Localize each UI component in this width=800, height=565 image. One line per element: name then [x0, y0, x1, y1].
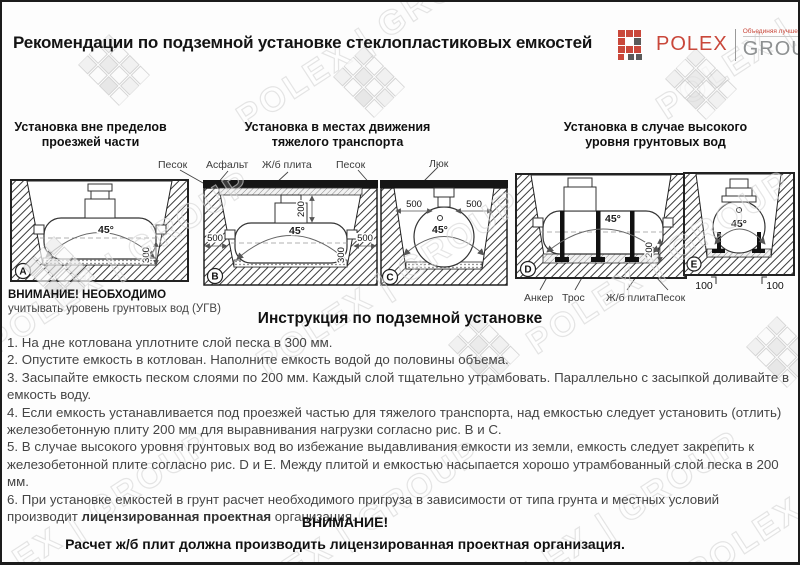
depth-dim: 300 [336, 247, 347, 263]
right-dim: 500 [466, 199, 482, 210]
page-title: Рекомендации по подземной установке стек… [13, 33, 592, 53]
section-heading-middle-line1: Установка в местах движения [245, 120, 431, 134]
angle-label: 45° [98, 224, 114, 236]
label-slab-top: Ж/б плита [262, 159, 312, 171]
logo-polex-text: POLEX [656, 33, 728, 56]
instructions-heading: Инструкция по подземной установке [0, 310, 800, 328]
attention-text: Расчет ж/б плит должна производить лицен… [0, 536, 690, 552]
instruction-item-4: 4. Если емкость устанавливается под прое… [7, 404, 793, 439]
angle-label: 45° [731, 218, 747, 230]
label-asphalt: Асфальт [206, 159, 248, 171]
label-hatch: Люк [429, 158, 448, 170]
diagram-c: 500 500 45° C [380, 176, 508, 287]
instruction-item-5: 5. В случае высокого уровня грунтовых во… [7, 438, 793, 490]
groundwater-note-title: ВНИМАНИЕ! НЕОБХОДИМО [8, 289, 166, 301]
slab-gap-dim: 200 [296, 201, 307, 217]
depth-dim: 300 [141, 247, 152, 263]
asphalt-layer [203, 180, 378, 188]
attention-block: ВНИМАНИЕ! Расчет ж/б плит должна произво… [0, 514, 690, 552]
section-heading-middle-line2: тяжелого транспорта [272, 135, 404, 149]
watermark-text: POLEX | GROUP [230, 0, 509, 138]
logo-group-text: GROUP [743, 38, 800, 61]
label-slab-bottom: Ж/б плита [606, 292, 656, 304]
left-dim: 500 [406, 199, 422, 210]
logo-divider [735, 29, 736, 61]
diagram-d: 45° 200 D [515, 173, 687, 285]
label-sand-right: Песок [336, 159, 365, 171]
section-heading-left-line2: проезжей части [42, 135, 140, 149]
instruction-item-3: 3. Засыпайте емкость песком слоями по 20… [7, 369, 793, 404]
diagram-letter: A [19, 267, 26, 278]
left-dim: 500 [207, 233, 223, 244]
right-dim: 500 [357, 233, 373, 244]
angle-label: 45° [605, 213, 621, 225]
diagram-letter: E [691, 260, 698, 271]
label-sand-left: Песок [158, 159, 187, 171]
attention-title: ВНИМАНИЕ! [0, 514, 690, 530]
angle-label: 45° [289, 225, 305, 237]
polex-logo-mark [618, 30, 648, 60]
instruction-item-2: 2. Опустите емкость в котлован. Наполнит… [7, 351, 793, 368]
label-anchor: Анкер [524, 292, 553, 304]
depth-dim: 200 [644, 242, 655, 258]
section-heading-right: Установка в случае высокого уровня грунт… [558, 120, 753, 149]
diagram-e: 45° E 100 100 [683, 172, 795, 296]
polex-logo: POLEX Объединяя лучшее! GROUP [618, 28, 800, 61]
diagram-letter: B [211, 272, 218, 283]
section-heading-right-line2: уровня грунтовых вод [585, 135, 726, 149]
diagram-b: 200 500 500 45° 300 B [203, 176, 378, 287]
asphalt-layer [380, 180, 508, 188]
label-sand-bottom: Песок [656, 292, 685, 304]
section-heading-left: Установка вне пределов проезжей части [8, 120, 173, 149]
logo-tagline: Объединяя лучшее! [743, 28, 800, 37]
diagram-letter: D [524, 265, 531, 276]
diagram-letter: C [386, 273, 393, 284]
angle-label: 45° [432, 224, 448, 236]
instructions-list: 1. На дне котлована уплотните слой песка… [7, 334, 793, 525]
section-heading-middle: Установка в местах движения тяжелого тра… [240, 120, 435, 149]
label-cable: Трос [562, 292, 585, 304]
document-page: POLEX | GROUP POLEX | GROUP POLEX | GROU… [0, 0, 800, 565]
watermark-text: POLEX | GROUP [650, 0, 800, 128]
section-heading-left-line1: Установка вне пределов [14, 120, 166, 134]
left-dim: 100 [695, 280, 713, 292]
grid-watermark-icon [333, 46, 405, 118]
right-dim: 100 [766, 280, 784, 292]
diagram-a: 45° 300 A [10, 178, 190, 284]
instruction-item-1: 1. На дне котлована уплотните слой песка… [7, 334, 793, 351]
section-heading-right-line1: Установка в случае высокого [564, 120, 747, 134]
concrete-slab [219, 188, 362, 195]
